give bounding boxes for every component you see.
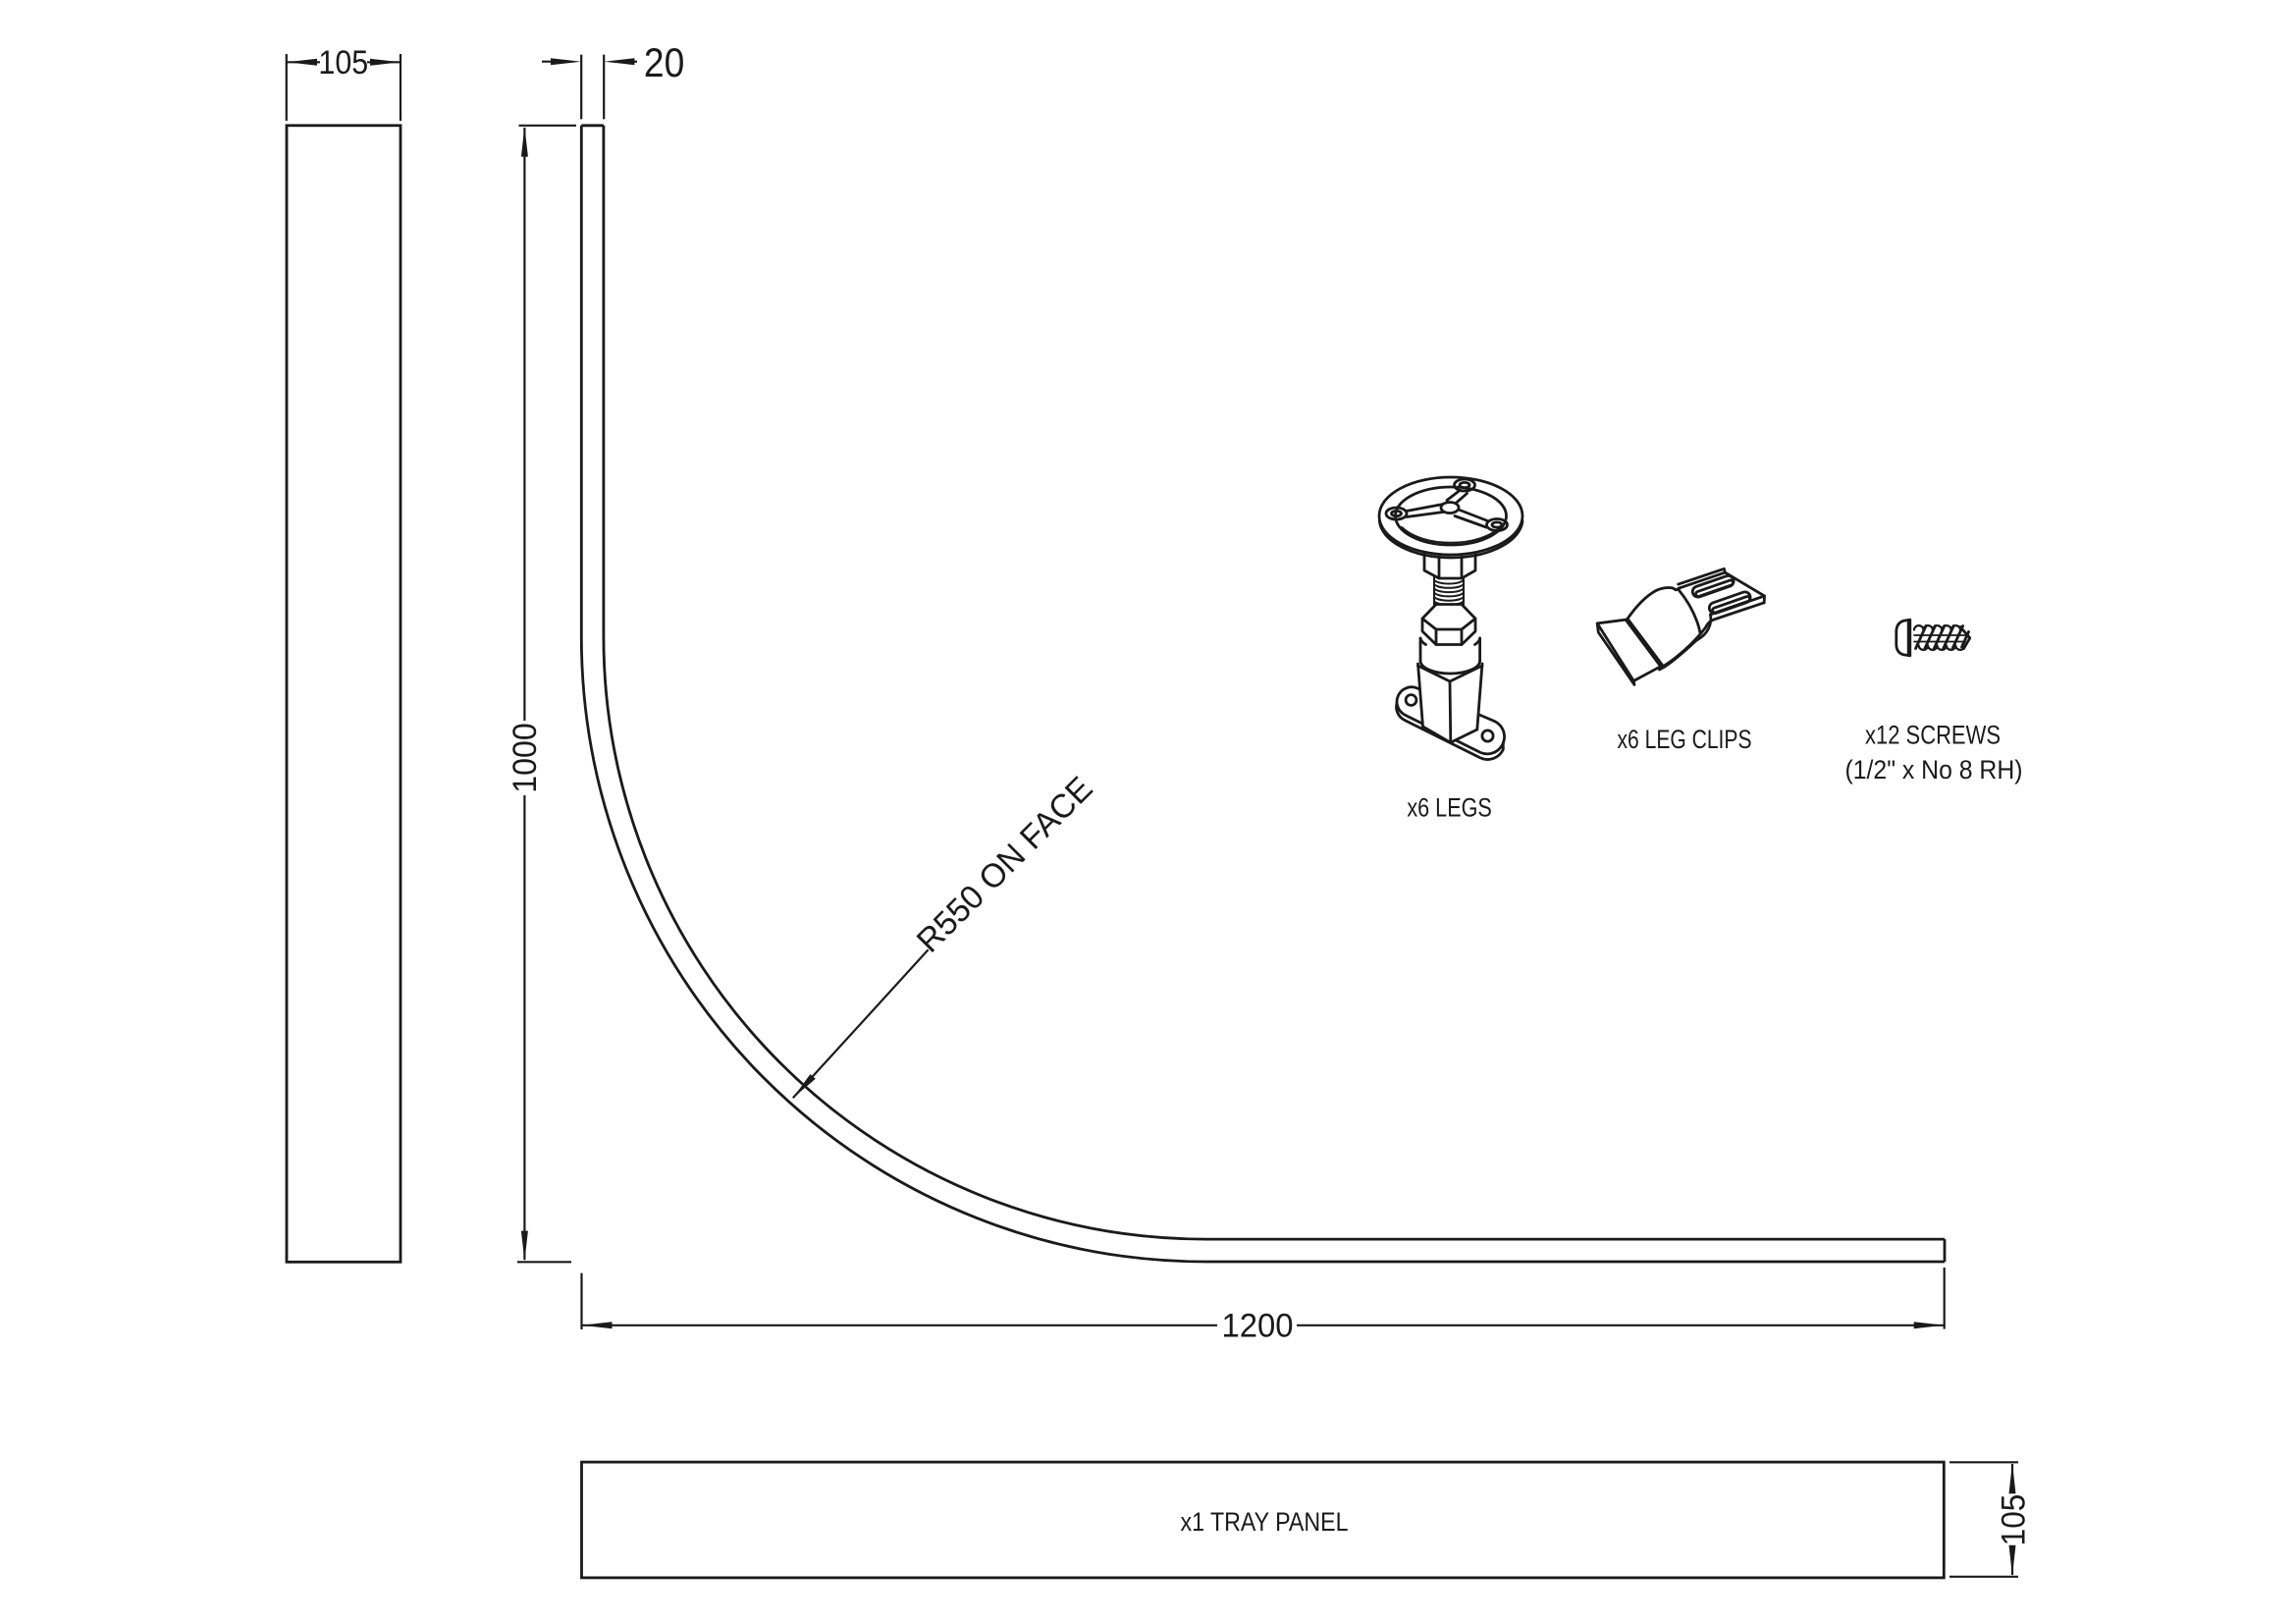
svg-text:105: 105 — [1995, 1494, 2032, 1546]
svg-text:1000: 1000 — [507, 723, 544, 793]
svg-text:x1 TRAY PANEL: x1 TRAY PANEL — [1181, 1507, 1349, 1537]
svg-text:20: 20 — [644, 39, 684, 85]
svg-text:1200: 1200 — [1222, 1308, 1294, 1345]
svg-text:x6 LEG CLIPS: x6 LEG CLIPS — [1618, 725, 1752, 754]
svg-text:x6 LEGS: x6 LEGS — [1407, 793, 1492, 823]
svg-text:(1/2" x No 8 RH): (1/2" x No 8 RH) — [1845, 755, 2023, 784]
svg-text:x12 SCREWS: x12 SCREWS — [1865, 720, 2001, 749]
svg-text:105: 105 — [318, 44, 368, 81]
